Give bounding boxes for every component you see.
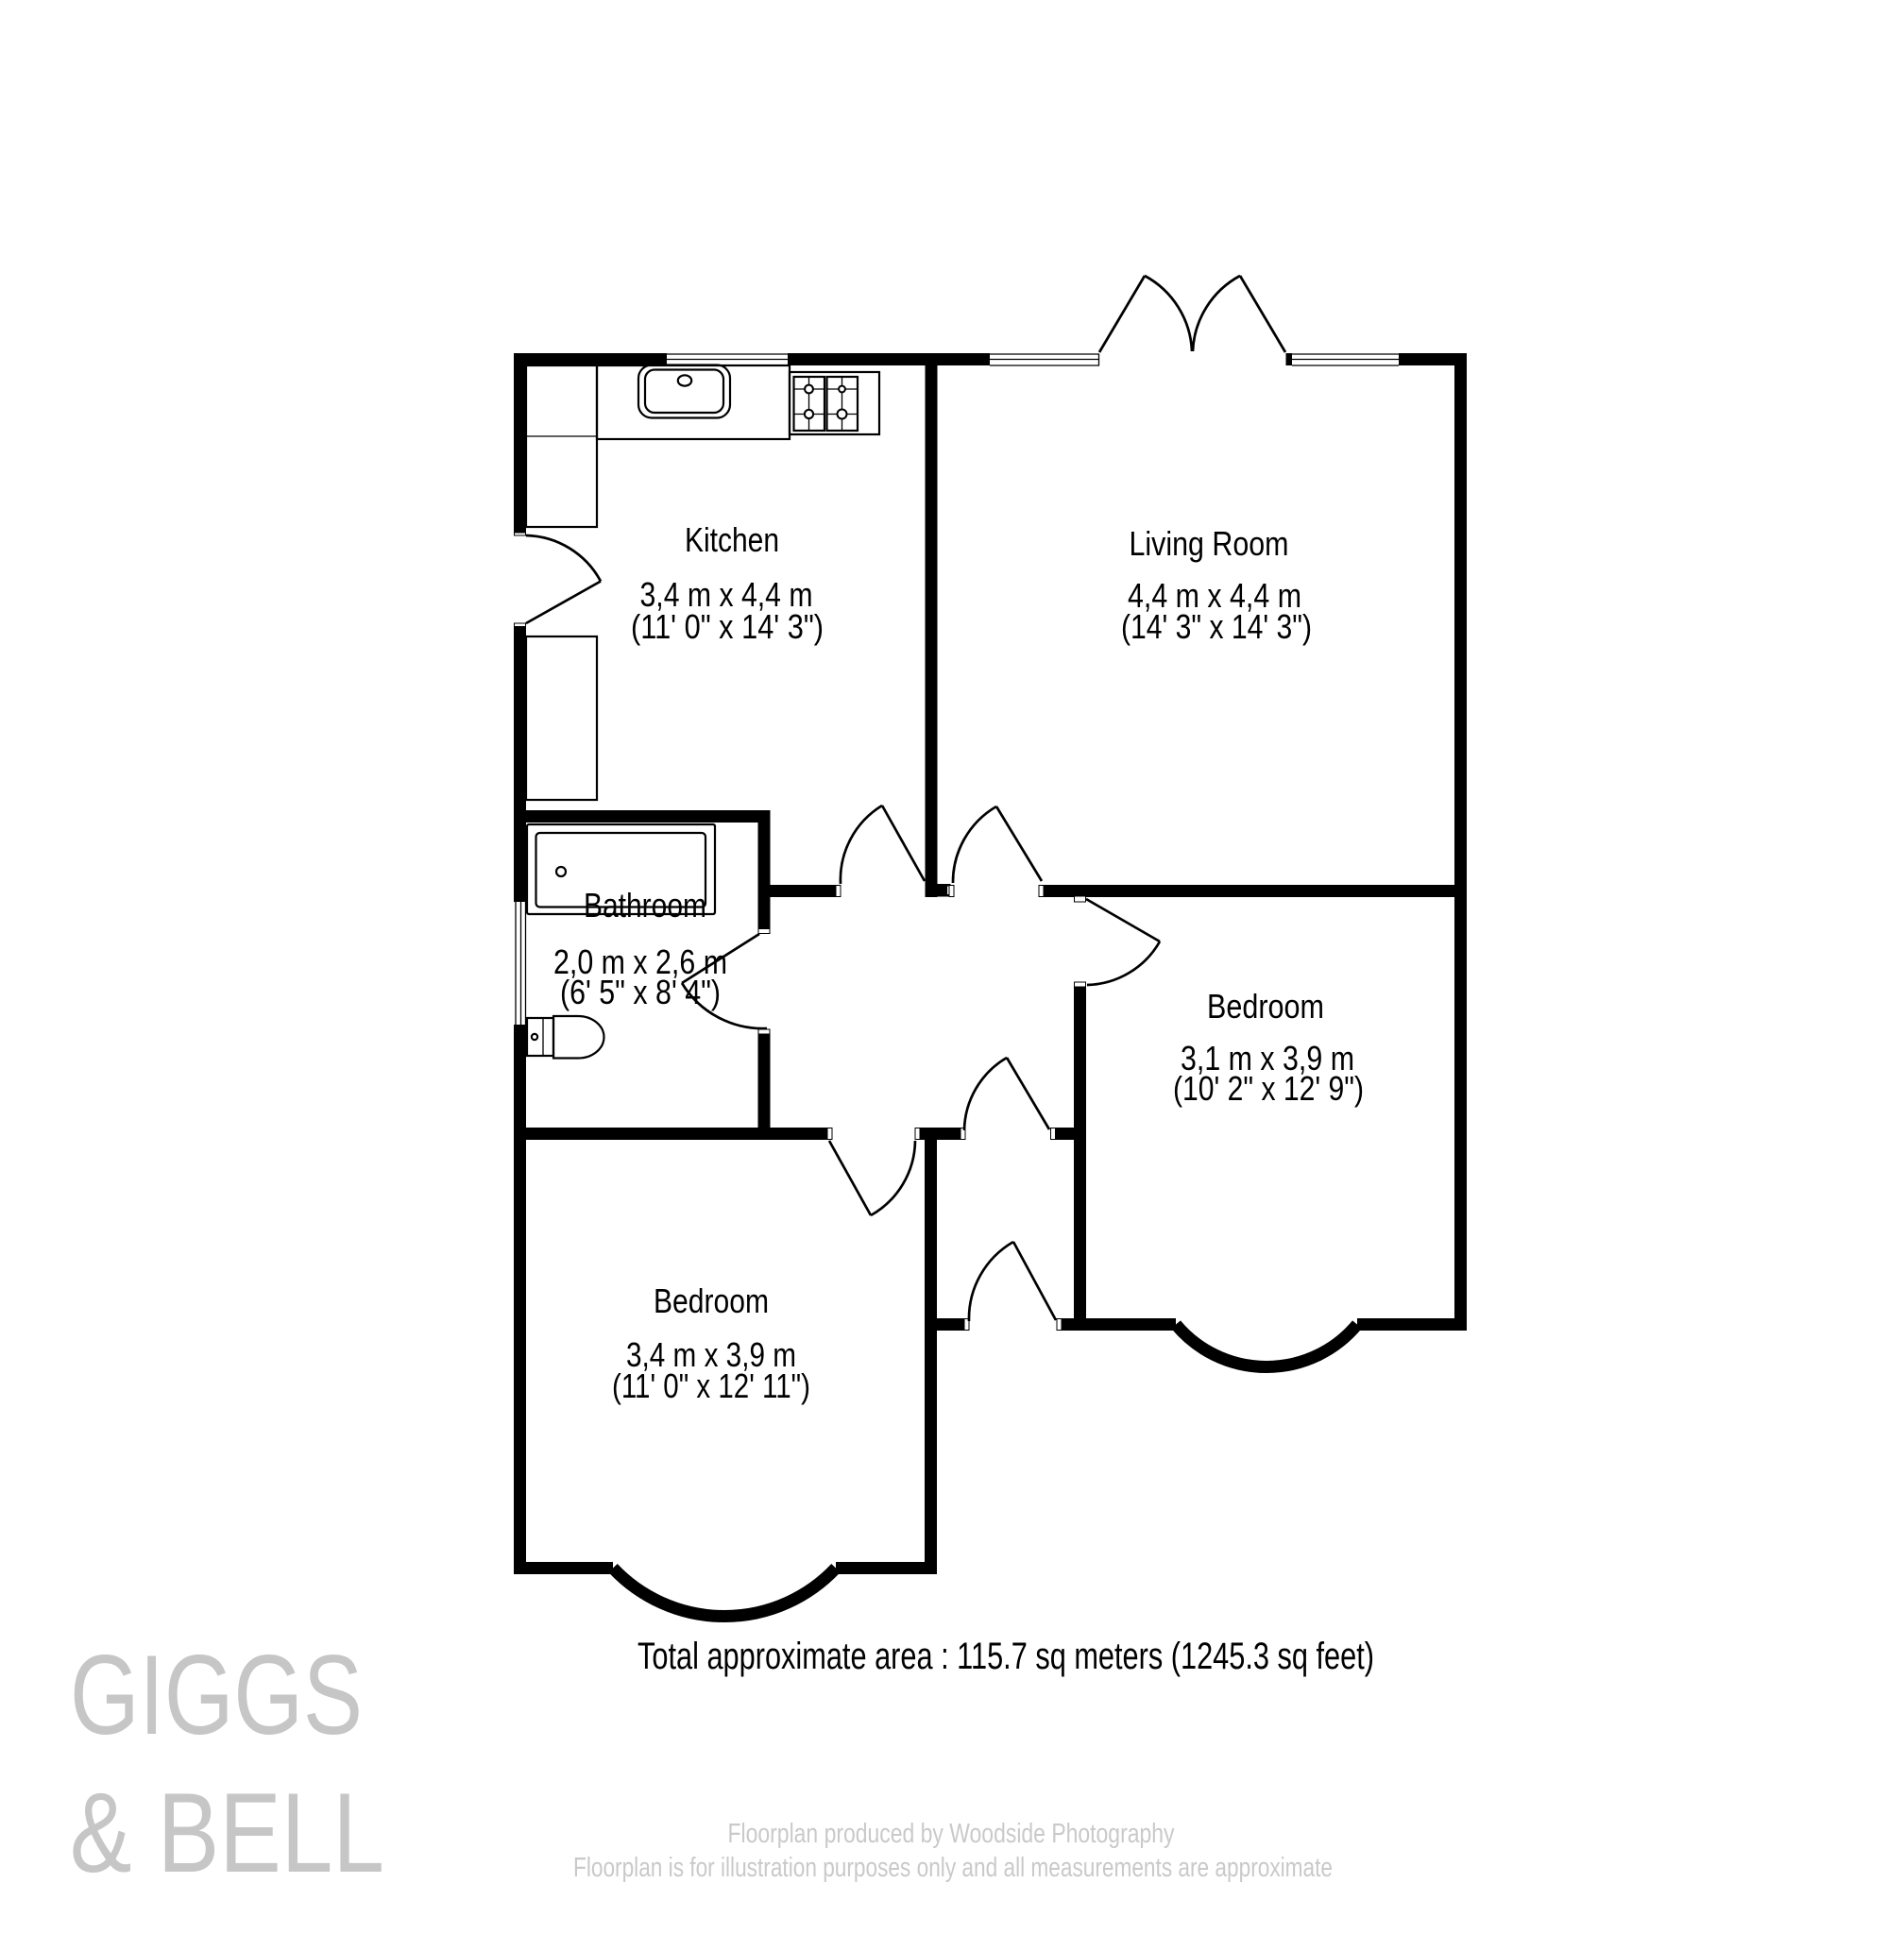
svg-text:Total approximate area : 115.7: Total approximate area : 115.7 sq meters… [637,1636,1374,1677]
svg-text:(14' 3" x 14' 3"): (14' 3" x 14' 3") [1121,607,1312,646]
svg-text:Kitchen: Kitchen [685,520,779,559]
svg-text:Bedroom: Bedroom [1207,987,1324,1026]
svg-text:Living Room: Living Room [1130,524,1289,563]
svg-text:& BELL: & BELL [70,1770,384,1896]
svg-text:(11' 0" x 12' 11"): (11' 0" x 12' 11") [612,1366,810,1405]
svg-text:Floorplan is for illustration: Floorplan is for illustration purposes o… [573,1853,1333,1883]
svg-text:Bedroom: Bedroom [654,1281,769,1320]
svg-text:Floorplan produced by Woodside: Floorplan produced by Woodside Photograp… [728,1819,1175,1849]
svg-text:(11' 0" x 14' 3"): (11' 0" x 14' 3") [631,607,824,646]
svg-text:(6' 5" x 8' 4"): (6' 5" x 8' 4") [560,973,721,1011]
svg-text:(10' 2" x 12' 9"): (10' 2" x 12' 9") [1173,1069,1364,1108]
svg-text:Bathroom: Bathroom [584,886,706,925]
svg-text:GIGGS: GIGGS [70,1632,363,1758]
